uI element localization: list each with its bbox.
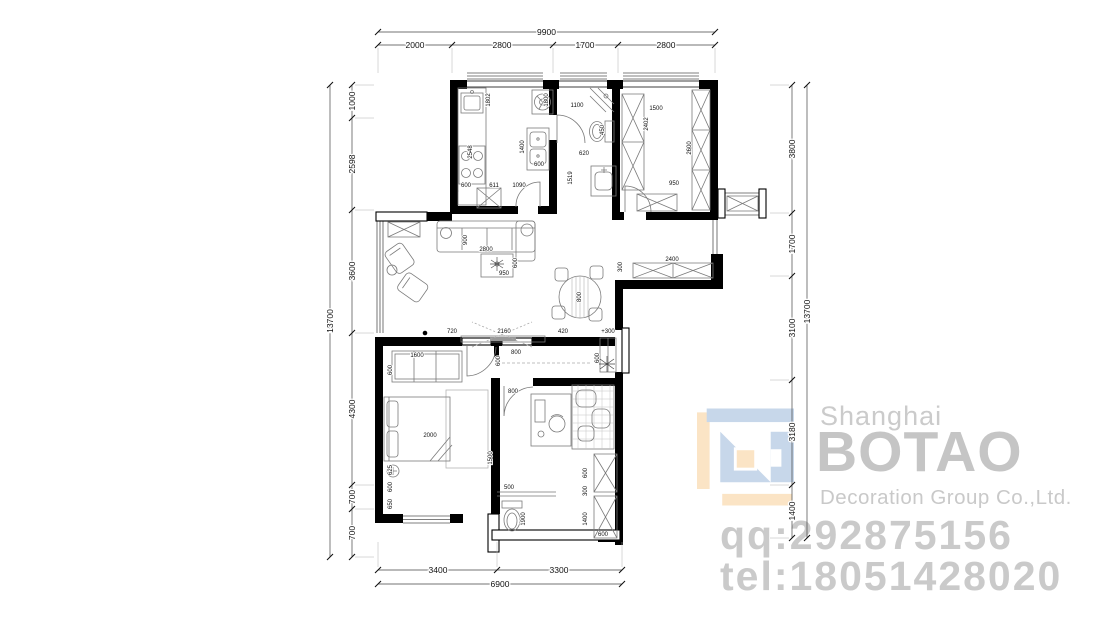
dim-label: 600	[496, 355, 502, 366]
dim-label: 3600	[347, 261, 357, 280]
dim-label: 2600	[687, 141, 693, 155]
dim-label: 1090	[512, 183, 526, 189]
dimension-chains: 2000280017002800990034003300690010002598…	[325, 27, 812, 589]
dim-label: 3400	[429, 565, 448, 575]
dim-label: 800	[508, 389, 519, 395]
dim-label: 600	[388, 364, 394, 375]
dim-label: 800	[577, 291, 583, 302]
dim-label: 1700	[576, 40, 595, 50]
dim-label: 9900	[537, 27, 556, 37]
dim-label: 13700	[802, 299, 812, 323]
dim-label: 2402	[644, 117, 650, 131]
dim-label: 2400	[665, 257, 679, 263]
dim-label: 1500	[649, 106, 663, 112]
dim-label: 300	[618, 261, 624, 272]
dim-label: 1519	[568, 171, 574, 185]
dim-label: 1700	[787, 234, 797, 253]
wall-outlines	[376, 189, 766, 552]
dim-label: 13700	[325, 309, 335, 333]
dim-label: 1400	[520, 140, 526, 154]
dim-label: 600	[595, 352, 601, 363]
dim-label: 2800	[479, 247, 493, 253]
room-study	[531, 385, 617, 538]
dim-label: 611	[489, 183, 499, 189]
dim-label: 1000	[347, 91, 357, 110]
dim-label: 950	[499, 271, 510, 277]
dim-label: 620	[579, 151, 590, 157]
dim-label: 1802	[486, 93, 492, 107]
dim-label: 600	[388, 481, 394, 492]
dim-label: 420	[558, 329, 569, 335]
dim-label: 1600	[410, 353, 424, 359]
dim-label: 3300	[550, 565, 569, 575]
bedroom-bl-door	[467, 346, 496, 376]
room-balcony	[384, 222, 430, 303]
dim-label: 2160	[497, 329, 511, 335]
dim-label: 950	[669, 181, 680, 187]
room-bedroom-bottom-left	[384, 351, 488, 477]
ac-platform	[727, 196, 758, 211]
floorplan-canvas: Shanghai BOTAO Decoration Group Co.,Ltd.…	[0, 0, 1099, 626]
floorplan-drawing: 2000280017002800990034003300690010002598…	[0, 0, 1099, 626]
dim-label: 4300	[347, 399, 357, 418]
dim-label: 300	[583, 485, 589, 496]
dim-label: 700	[347, 526, 357, 540]
dim-label: 650	[388, 498, 394, 509]
dim-label: 1400	[583, 512, 589, 526]
dim-label: 625	[388, 464, 394, 475]
dim-label: 2000	[423, 433, 437, 439]
wall-face-lines	[450, 81, 718, 87]
dim-label: 3180	[787, 422, 797, 441]
dim-label: 2548	[468, 145, 474, 159]
dim-label: 3800	[787, 139, 797, 158]
dim-label: 450	[600, 124, 606, 135]
dim-label: 600	[461, 183, 472, 189]
dim-label: 2000	[406, 40, 425, 50]
dim-label: 6900	[491, 579, 510, 589]
room-bedroom-top-right	[622, 90, 710, 211]
dim-label: 500	[504, 485, 515, 491]
dim-label: 1400	[787, 501, 797, 520]
dim-label: 2800	[657, 40, 676, 50]
dim-label: 1900	[521, 512, 527, 526]
dim-label: 600	[598, 532, 609, 538]
dim-label: 900	[463, 234, 469, 245]
dim-label: 2800	[493, 40, 512, 50]
dim-label: 1800	[544, 93, 550, 107]
dim-label: 600	[583, 467, 589, 478]
dim-label: 1500	[488, 451, 494, 465]
windows	[377, 73, 766, 539]
interior-dimension-labels: 1802180025481400600611109060011004506201…	[388, 93, 693, 538]
dim-label: 3100	[787, 318, 797, 337]
dim-label: +300	[601, 329, 615, 335]
dim-label: 1100	[571, 103, 585, 109]
dim-label: 600	[534, 162, 545, 168]
dim-label: 800	[511, 350, 522, 356]
dim-label: 720	[447, 329, 458, 335]
dim-label: 700	[347, 490, 357, 504]
dim-label: 2598	[347, 154, 357, 173]
dim-label: 600	[513, 257, 519, 268]
bathroom-door	[557, 115, 585, 143]
